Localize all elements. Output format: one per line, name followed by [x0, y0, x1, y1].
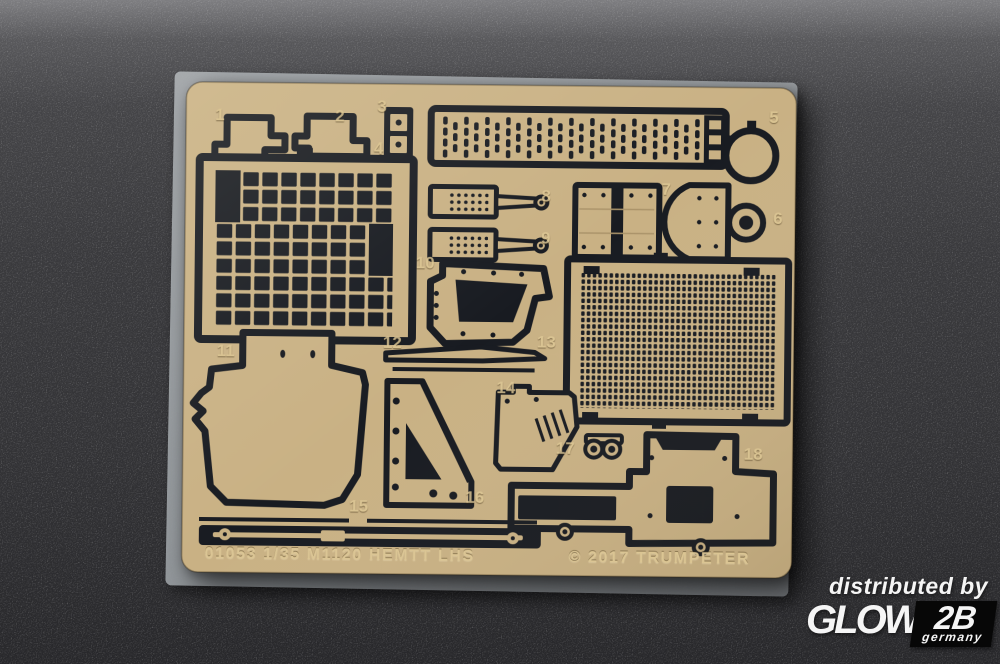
photo-background: { "colors":{ "fret_brass":"#c9b184", "et…	[0, 0, 1000, 664]
fret-parts-drawing	[180, 81, 797, 579]
part-label-18: 18	[744, 445, 763, 465]
part-label-6: 6	[773, 209, 783, 229]
part-label-15: 15	[349, 497, 368, 517]
part-label-14: 14	[496, 378, 515, 398]
part-label-2: 2	[335, 106, 345, 126]
watermark-brand: GLOW 2B germany	[806, 601, 994, 647]
part-label-1: 1	[215, 105, 225, 125]
part-label-13: 13	[537, 333, 556, 353]
brand-2b-box: 2B germany	[910, 601, 997, 647]
fret-footer-copyright: © 2017 TRUMPETER	[569, 549, 751, 569]
part-label-7: 7	[661, 180, 671, 200]
brand-country-text: germany	[922, 630, 984, 644]
part-label-10: 10	[416, 253, 435, 273]
part-label-8: 8	[541, 187, 551, 207]
brand-2b-text: 2B	[923, 602, 988, 633]
part-label-11: 11	[217, 341, 235, 361]
fret-sheen	[181, 82, 796, 578]
photo-etch-fret: 123456789101112131415161718 01053 1/35 M…	[180, 81, 797, 579]
part-label-3: 3	[377, 97, 387, 117]
part-label-5: 5	[769, 108, 779, 128]
part-label-16: 16	[465, 488, 484, 508]
brand-glow-text: GLOW	[806, 601, 918, 639]
part-label-9: 9	[541, 229, 551, 249]
watermark: distributed by GLOW 2B germany	[806, 573, 994, 647]
watermark-distributed-by: distributed by	[806, 573, 988, 600]
part-label-4: 4	[374, 139, 384, 159]
part-label-12: 12	[383, 333, 402, 353]
part-label-17: 17	[556, 439, 575, 459]
fret-footer-title: 01053 1/35 M1120 HEMTT LHS	[205, 545, 475, 566]
